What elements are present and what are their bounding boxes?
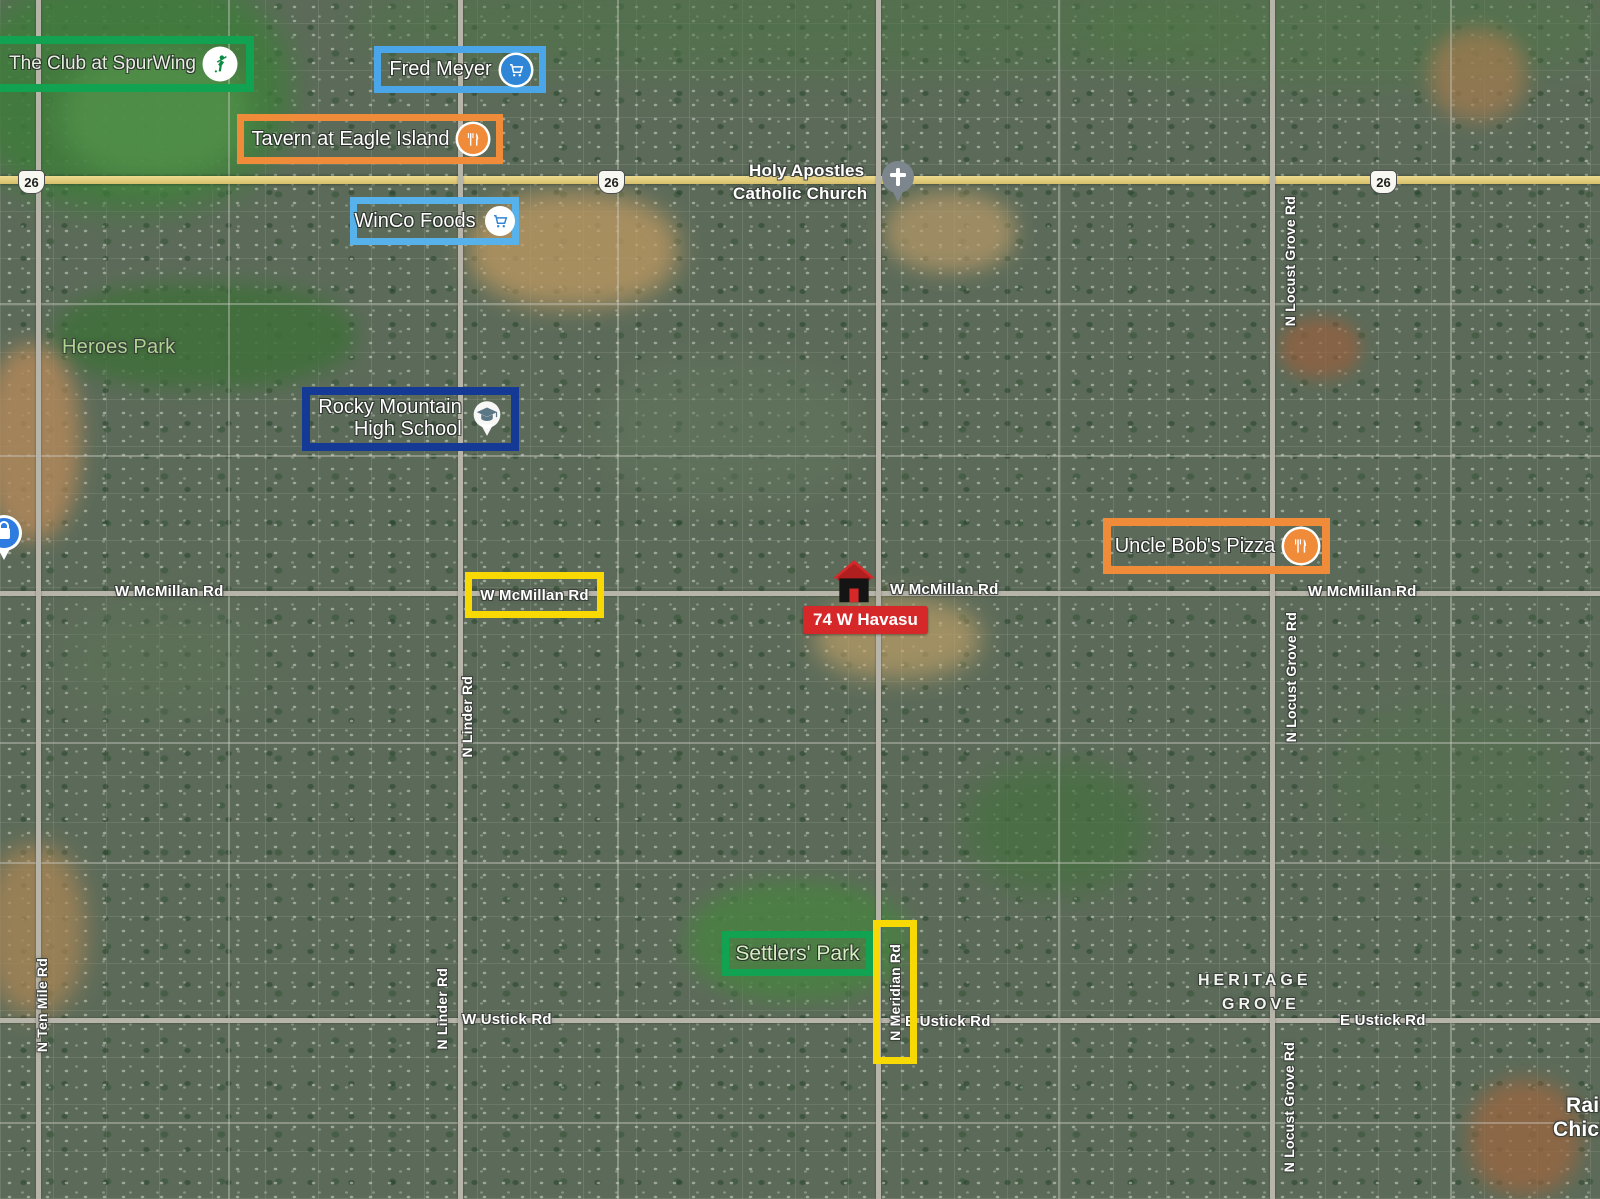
- poi-tavern-at-eagle-island[interactable]: Tavern at Eagle Island: [237, 114, 503, 164]
- poi-rocky-mountain-high-school[interactable]: Rocky Mountain High School: [302, 387, 519, 451]
- road-label-locust-grove-north: N Locust Grove Rd: [1282, 196, 1298, 326]
- terrain-patch: [60, 600, 260, 720]
- route-number: 26: [604, 175, 618, 190]
- route-26-shield: 26: [598, 170, 625, 194]
- poi-label: Fred Meyer: [389, 58, 491, 81]
- poi-uncle-bobs-pizza[interactable]: Uncle Bob's Pizza: [1103, 518, 1330, 574]
- poi-label: Rocky Mountain High School: [318, 397, 461, 440]
- route-number: 26: [1376, 175, 1390, 190]
- road-minor: [0, 455, 1600, 457]
- road-label-ustick-east: E Ustick Rd: [1340, 1012, 1426, 1029]
- golfer-icon: [205, 49, 235, 79]
- road-label-mcmillan-mid: W McMillan Rd: [890, 581, 998, 598]
- poi-club-at-spurwing[interactable]: The Club at SpurWing: [0, 36, 254, 92]
- road-label-mcmillan-right: W McMillan Rd: [1308, 583, 1416, 600]
- road-minor: [0, 742, 1600, 744]
- road-label-ten-mile: N Ten Mile Rd: [34, 958, 50, 1052]
- heroes-park-label: Heroes Park: [62, 336, 175, 359]
- route-number: 26: [24, 175, 38, 190]
- road-label-linder-south: N Linder Rd: [434, 968, 450, 1050]
- map-pin-icon: [0, 514, 24, 562]
- heritage-grove-label-line1: HERITAGE: [1198, 972, 1311, 990]
- graduation-cap-icon: [471, 400, 503, 438]
- road-label-linder: N Linder Rd: [459, 676, 475, 758]
- shopping-cart-icon: [501, 55, 531, 85]
- road-label-mcmillan-boxed: W McMillan Rd: [480, 587, 588, 604]
- terrain-patch: [885, 192, 1015, 272]
- church-label-line2: Catholic Church: [733, 184, 867, 204]
- poi-label: The Club at SpurWing: [9, 53, 196, 75]
- poi-label-line2: High School: [354, 418, 462, 440]
- road-label-mcmillan-left: W McMillan Rd: [115, 583, 223, 600]
- poi-label-line1: Rocky Mountain: [318, 396, 461, 418]
- road-label-meridian-boxed: N Meridian Rd: [887, 944, 903, 1041]
- partial-label-chick: Chick: [1553, 1118, 1600, 1142]
- road-label-locust-grove-mid: N Locust Grove Rd: [1283, 612, 1299, 742]
- route-26-shield: 26: [1370, 170, 1397, 194]
- poi-label: Uncle Bob's Pizza: [1115, 535, 1276, 558]
- road-minor: [0, 1122, 1600, 1124]
- restaurant-icon: [458, 124, 488, 154]
- poi-label: WinCo Foods: [354, 210, 475, 233]
- road-label-ustick-west: W Ustick Rd: [462, 1011, 552, 1028]
- shopping-cart-icon: [485, 206, 515, 236]
- road-minor: [0, 303, 1600, 305]
- heritage-grove-label-line2: GROVE: [1222, 996, 1300, 1014]
- terrain-patch: [1280, 318, 1360, 378]
- church-label-line1: Holy Apostles: [749, 161, 864, 181]
- road-label-ustick-east-mid: E Ustick Rd: [905, 1013, 991, 1030]
- restaurant-icon: [1284, 529, 1318, 563]
- address-marker-label[interactable]: 74 W Havasu: [803, 606, 928, 634]
- road-locust-grove: [1270, 0, 1275, 1199]
- poi-label: Settlers' Park: [735, 942, 859, 966]
- house-icon[interactable]: [832, 558, 876, 608]
- highlight-mcmillan-rd[interactable]: W McMillan Rd: [465, 572, 604, 618]
- road-label-locust-grove-south: N Locust Grove Rd: [1281, 1042, 1297, 1172]
- terrain-patch: [600, 360, 860, 500]
- poi-fred-meyer[interactable]: Fred Meyer: [374, 46, 546, 93]
- poi-settlers-park[interactable]: Settlers' Park: [722, 931, 873, 976]
- road-minor: [0, 862, 1600, 864]
- partial-label-rais: Rais: [1566, 1094, 1600, 1118]
- cross-pin-icon: [880, 160, 916, 204]
- satellite-map[interactable]: 26 26 26 W McMillan Rd W McMillan Rd W M…: [0, 0, 1600, 1199]
- highlight-meridian-rd[interactable]: N Meridian Rd: [873, 920, 917, 1064]
- terrain-patch: [1430, 30, 1525, 120]
- route-26-shield: 26: [18, 170, 45, 194]
- poi-label: Tavern at Eagle Island: [252, 128, 450, 151]
- poi-winco-foods[interactable]: WinCo Foods: [350, 197, 519, 245]
